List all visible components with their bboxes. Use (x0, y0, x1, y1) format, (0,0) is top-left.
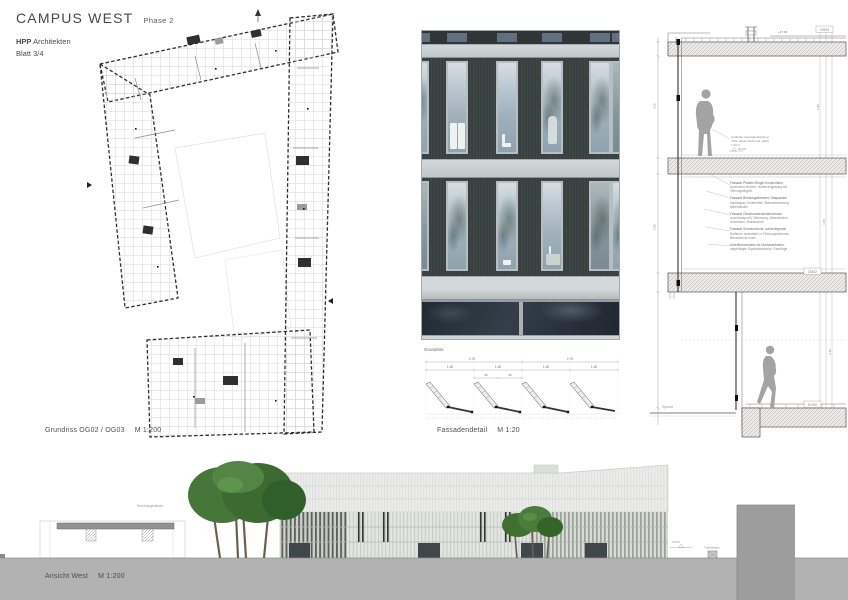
dim-label: 3.35 (653, 103, 657, 109)
north-arrow-icon (255, 9, 261, 22)
trafo-label: Trafostation (704, 546, 720, 550)
dim-label: 2.80 (653, 224, 657, 230)
photo-floor-row-upper (422, 58, 619, 159)
annotation: Fassade Geschossdeckenanschluss: Anschlu… (730, 212, 792, 224)
window (541, 181, 563, 271)
floor-plan-drawing (75, 8, 375, 448)
dim-label: 2.70 (469, 357, 476, 361)
floor-tag: OG02 (808, 270, 817, 274)
ground-slab (650, 404, 846, 437)
presentation-board: CAMPUS WESTPhase 2 HPP Architekten Blatt… (0, 0, 848, 600)
west-elevation-drawing: Seminargebäude Trafostation ±0.00 (0, 455, 848, 600)
top-level-mark: +17.96 (778, 30, 788, 34)
section-left-dims (657, 37, 660, 425)
photo-slab-band (422, 44, 619, 58)
sawtooth-facade-modules (426, 382, 618, 418)
annotation: Fassade Brüstungselement: Glaspaneel dun… (730, 196, 792, 208)
plan-left-wing (100, 64, 178, 308)
window (496, 181, 518, 271)
facade-scale: M 1:20 (497, 427, 520, 434)
photo-floor-row-lower (422, 178, 619, 276)
rooftop-box (534, 465, 558, 473)
annotation: Fassade Sonnenschutz: außenliegende Raff… (730, 227, 792, 239)
walking-person-silhouette (757, 346, 776, 408)
standing-person-silhouette (696, 89, 715, 156)
plan-building-wings (100, 14, 338, 437)
window (446, 181, 468, 271)
dim-label: 2.70 (567, 357, 574, 361)
tower-silhouette (737, 505, 795, 600)
window (589, 181, 611, 271)
elevation-upper-floors (280, 463, 668, 513)
facade-caption: FassadendetailM 1:20 (437, 427, 520, 434)
elevation-scale: M 1:200 (98, 573, 125, 580)
section-annotations: Fassade Pfosten-Riegel-Konstruktion, Alu… (730, 181, 792, 254)
pavilion-structure (40, 521, 185, 558)
annotation: Fassade Pfosten-Riegel-Konstruktion, Alu… (730, 181, 792, 193)
section-right-dims (819, 30, 834, 425)
pavilion-label: Seminargebäude (137, 504, 164, 508)
facade-plan-label: Grundriss (424, 347, 444, 352)
window (496, 61, 518, 154)
trafo-station: Trafostation (704, 546, 720, 559)
dim-label: 1.35 (591, 365, 598, 369)
ground-label: Spinde (662, 405, 673, 409)
dim-label: 2.80 (816, 104, 820, 110)
window (589, 61, 611, 154)
facade-plan-detail: Grundriss 2.70 2.70 1.35 1.35 1.35 1.35 … (420, 344, 624, 428)
photo-ground-glazing (422, 300, 619, 335)
section-note: Geländer Ganzglasbrüstung VSG, absturzsi… (731, 136, 773, 148)
architect-suffix: Architekten (33, 37, 71, 46)
dim-label: 1.35 (543, 365, 550, 369)
architect-acronym: HPP (16, 37, 31, 46)
section-slabs (668, 42, 846, 299)
elevation-caption: Ansicht WestM 1:200 (45, 573, 125, 580)
sheet-number: Blatt 3/4 (16, 49, 44, 58)
facade-photo (421, 30, 620, 340)
ground-band (0, 558, 848, 600)
dim-label: 4.45 (828, 349, 832, 355)
window (541, 61, 563, 154)
dim-label: 3.35 (822, 219, 826, 225)
dim-label: 1.35 (447, 365, 454, 369)
floor-tag: EG00 (808, 403, 817, 407)
floor-tag: OG03 (820, 28, 829, 32)
dim-label: 35 (484, 373, 488, 377)
plan-scale: M 1:200 (135, 427, 162, 434)
courtyard-outline (175, 133, 280, 258)
dim-label: 1.35 (495, 365, 502, 369)
ground-floor-wall (735, 292, 742, 410)
plan-caption: Grundriss OG02 / OG03M 1:200 (45, 427, 161, 434)
window (446, 61, 468, 154)
elevation-level-mark: ±0.00 (670, 540, 692, 548)
photo-upper-floor-strip (422, 31, 619, 44)
person-reflection (548, 116, 557, 144)
annotation: Unterflurkonvektor im Hohlraumboden, abg… (730, 243, 792, 251)
svg-text:±0.00: ±0.00 (672, 540, 680, 544)
dim-label: 35 (508, 373, 512, 377)
architect-name: HPP Architekten (16, 37, 71, 46)
pavilion-roof-slab (57, 523, 174, 529)
